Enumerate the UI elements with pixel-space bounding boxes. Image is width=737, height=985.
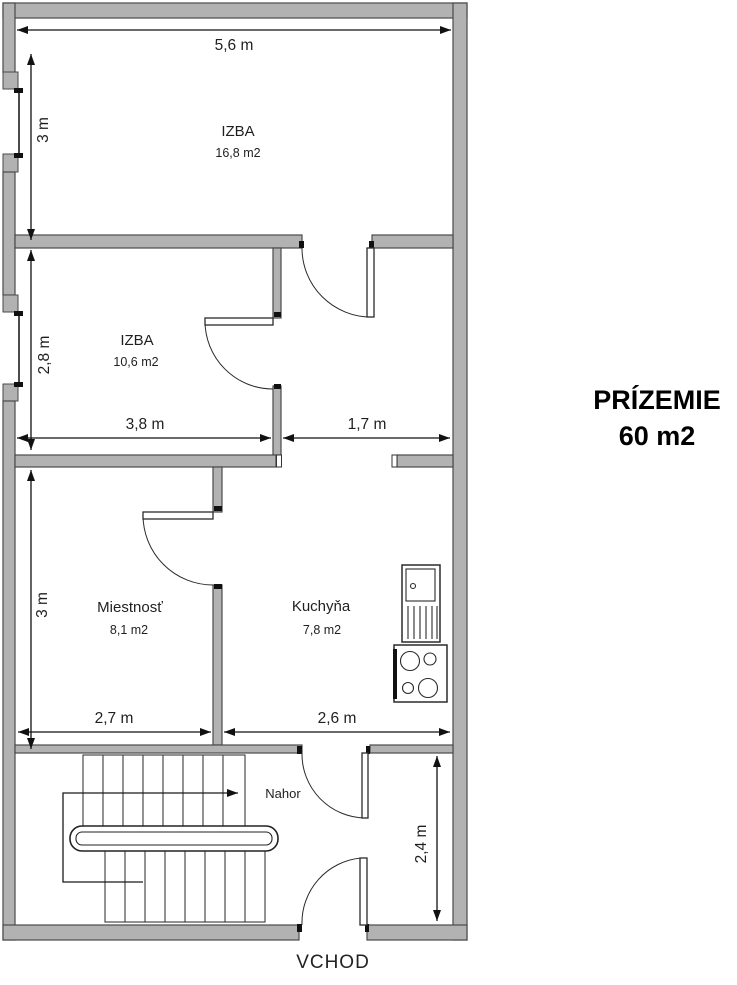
door-icon-hallway-top: [299, 241, 374, 317]
room4-area-label: 7,8 m2: [303, 623, 341, 637]
kitchen-sink-icon: [402, 565, 440, 642]
floor-area: 60 m2: [619, 421, 696, 451]
window-icon-2: [14, 311, 23, 387]
room4-name-label: Kuchyňa: [292, 598, 351, 615]
dim-kitchen-width-label: 2,6 m: [318, 710, 357, 727]
wall-outer-left-3: [3, 401, 15, 940]
wall-hallway-left-lower: [273, 386, 281, 455]
wall-miestnost-kuchyna-lower: [213, 585, 222, 745]
wall-opening-jamb: [392, 455, 397, 467]
wall-opening-jamb: [277, 455, 282, 467]
room3-name-label: Miestnosť: [97, 599, 163, 616]
wall-outer-top: [3, 3, 467, 18]
wall-divider2-right: [397, 455, 453, 467]
wall-outer-bottom-left: [3, 925, 299, 940]
dim-room1-width-label: 5,6 m: [215, 37, 254, 54]
wall-outer-left-1: [3, 3, 15, 73]
dim-room2-width-label: 3,8 m: [126, 416, 165, 433]
walls: [3, 3, 467, 940]
wall-divider2-left: [15, 455, 276, 467]
stair-handrail: [70, 826, 278, 851]
dim-entry-height-label: 2,4 m: [413, 825, 430, 864]
dim-room1-height-label: 3 m: [35, 117, 52, 143]
window-icon-1: [14, 88, 23, 158]
room1-name-label: IZBA: [221, 123, 254, 140]
wall-outer-left-2: [3, 172, 15, 295]
floorplan-canvas: 5,6 m 3 m IZBA 16,8 m2 2,8 m IZBA 10,6 m…: [0, 0, 737, 985]
door-icon-izba2: [205, 312, 281, 389]
door-icon-miestnost: [143, 506, 222, 589]
wall-divider1-left: [15, 235, 302, 248]
door-icon-stair-hall: [297, 746, 370, 818]
wall-outer-right: [453, 3, 467, 940]
stairs-up-label: Nahor: [265, 786, 301, 801]
wall-divider3-left: [15, 745, 302, 753]
room1-area-label: 16,8 m2: [215, 146, 260, 160]
wall-hallway-left-upper: [273, 248, 281, 318]
staircase-icon: [63, 755, 278, 922]
room2-area-label: 10,6 m2: [113, 355, 158, 369]
dimension-lines: [17, 30, 451, 921]
window-post: [3, 295, 18, 312]
wall-divider1-right: [372, 235, 453, 248]
entrance-label: VCHOD: [296, 952, 370, 973]
dim-room3-width-label: 2,7 m: [95, 710, 134, 727]
door-icon-entrance: [297, 858, 369, 932]
window-post: [3, 72, 18, 89]
room3-area-label: 8,1 m2: [110, 623, 148, 637]
wall-miestnost-kuchyna-upper: [213, 467, 222, 512]
room2-name-label: IZBA: [120, 332, 153, 349]
floor-title: PRÍZEMIE: [593, 384, 721, 415]
dim-room2-height-label: 2,8 m: [36, 336, 53, 375]
dim-room3-height-label: 3 m: [34, 592, 51, 618]
stove-icon: [393, 645, 447, 702]
wall-outer-bottom-right: [367, 925, 467, 940]
wall-divider3-right: [370, 745, 453, 753]
dim-hallway-width-label: 1,7 m: [348, 416, 387, 433]
floorplan-page: 5,6 m 3 m IZBA 16,8 m2 2,8 m IZBA 10,6 m…: [0, 0, 737, 985]
